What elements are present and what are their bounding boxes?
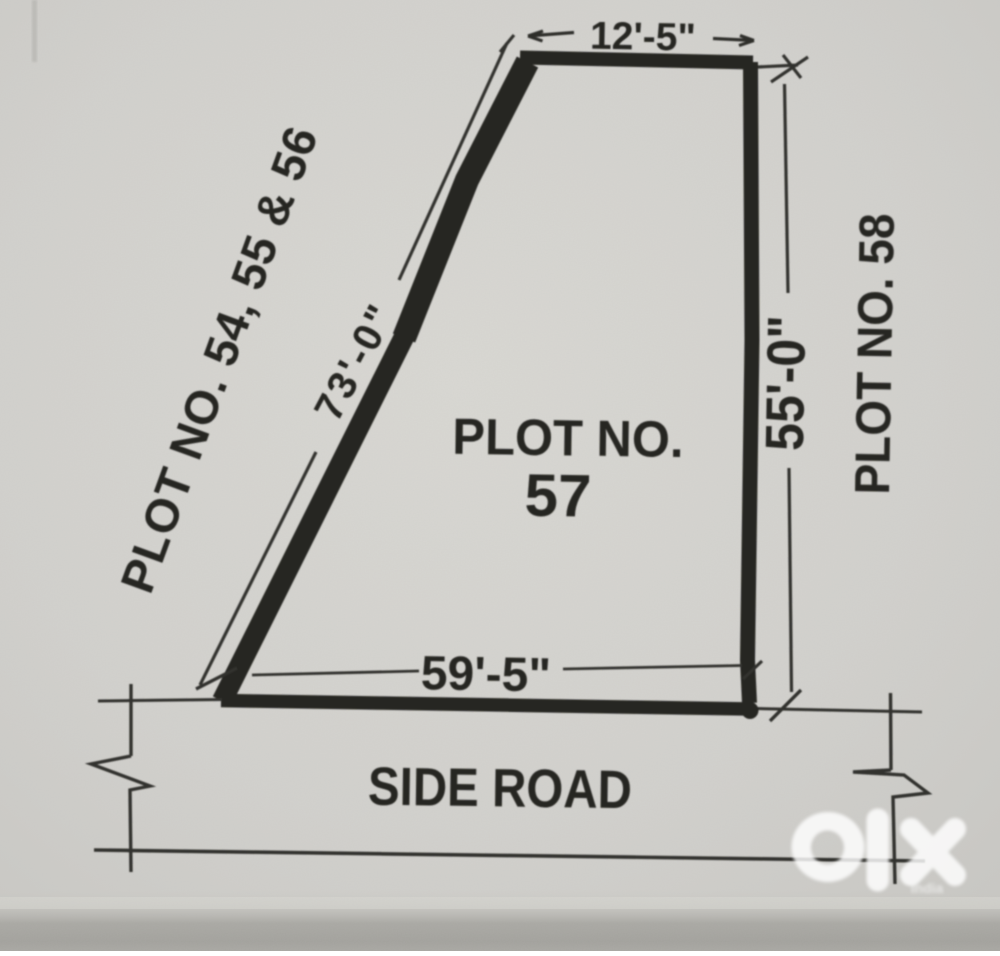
svg-text:PLOT NO. 58: PLOT NO. 58 bbox=[846, 213, 905, 495]
svg-text:India: India bbox=[911, 880, 944, 896]
svg-text:12'-5": 12'-5" bbox=[590, 15, 697, 60]
svg-text:55'-0": 55'-0" bbox=[755, 315, 818, 452]
svg-text:57: 57 bbox=[524, 462, 592, 530]
svg-text:PLOT NO.: PLOT NO. bbox=[452, 408, 684, 468]
svg-text:59'-5": 59'-5" bbox=[420, 647, 551, 702]
svg-text:SIDE ROAD: SIDE ROAD bbox=[368, 756, 633, 820]
